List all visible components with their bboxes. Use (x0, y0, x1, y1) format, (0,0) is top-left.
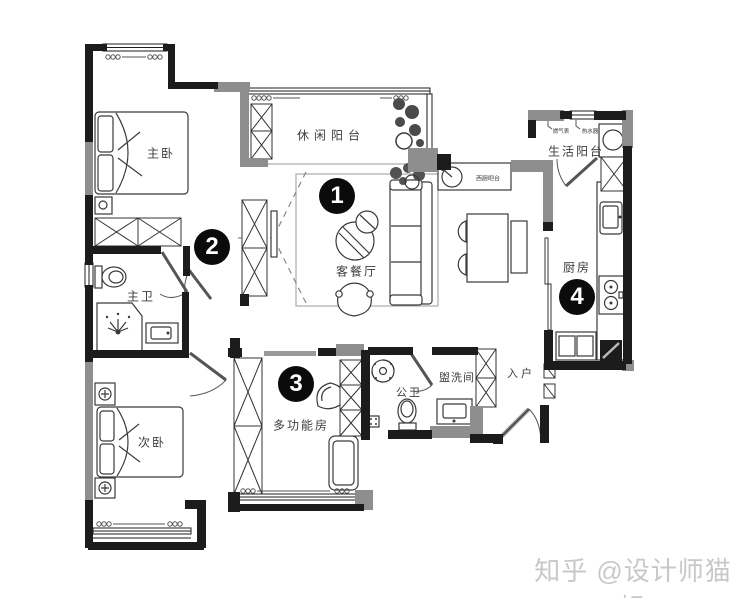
room-label-entry: 入户 (507, 365, 535, 381)
master-bedroom-window (103, 44, 167, 51)
watermark-text: 知乎 @设计师猫姐 (528, 551, 738, 598)
entry-cabinet (476, 349, 496, 407)
master-bedroom-door (160, 252, 187, 298)
marker-3-multi-function: 3 (278, 366, 314, 402)
master-bath-window (85, 263, 93, 287)
multi-room-window (237, 494, 357, 500)
armchair-icon (336, 283, 373, 316)
room-label-multi-function: 多功能房 (273, 417, 329, 434)
life-balcony-window (570, 111, 596, 119)
label-gas-meter: 燃气表 (553, 127, 570, 135)
round-table-icon (336, 211, 378, 260)
marker-2-corridor: 2 (194, 229, 230, 265)
master-wardrobe (95, 218, 181, 246)
multi-right-cabinet (340, 360, 362, 436)
label-west-kitchen-bar: 西厨吧台 (476, 174, 500, 183)
balcony-right-window (427, 94, 432, 150)
washroom-sink-icon (437, 399, 472, 424)
room-label-living-dining: 客餐厅 (336, 263, 378, 280)
dining-table-icon (458, 214, 527, 282)
living-side-cabinet (242, 200, 267, 296)
floor-plan-drawing (0, 0, 750, 598)
room-label-washroom: 盥洗间 (439, 369, 475, 385)
marker-1-living-dining: 1 (319, 178, 355, 214)
room-label-life-balcony: 生活阳台 (548, 143, 604, 160)
balcony-side-cabinet (251, 104, 272, 159)
room-label-kitchen: 厨房 (563, 259, 591, 276)
marker-4-kitchen: 4 (559, 279, 595, 315)
balcony-plants-icon (393, 98, 424, 149)
multi-left-wardrobe (234, 358, 262, 494)
room-label-leisure-balcony: 休闲阳台 (297, 127, 365, 144)
room-label-public-bath: 公卫 (396, 384, 422, 400)
master-bed-icon (95, 112, 188, 214)
second-bedroom-bay-window (93, 528, 191, 538)
tv-icon (271, 211, 277, 257)
room-label-master-bath: 主卫 (127, 288, 155, 305)
master-bath-fixtures (95, 266, 178, 352)
life-balcony-door (557, 158, 597, 186)
floor-plan-page: 主卧 休闲阳台 生活阳台 客餐厅 厨房 主卫 次卧 多功能房 公卫 盥洗间 入户… (0, 0, 750, 598)
leisure-balcony-window (248, 88, 430, 94)
kitchen-sliding-door (545, 238, 551, 330)
label-water-heater: 热水器 (582, 127, 599, 135)
room-label-master-bedroom: 主卧 (147, 145, 175, 162)
entry-door (497, 409, 541, 441)
room-label-second-bedroom: 次卧 (138, 434, 166, 451)
sofa-icon (390, 180, 432, 305)
second-bedroom-door (190, 353, 226, 396)
doors-layer (160, 158, 597, 441)
